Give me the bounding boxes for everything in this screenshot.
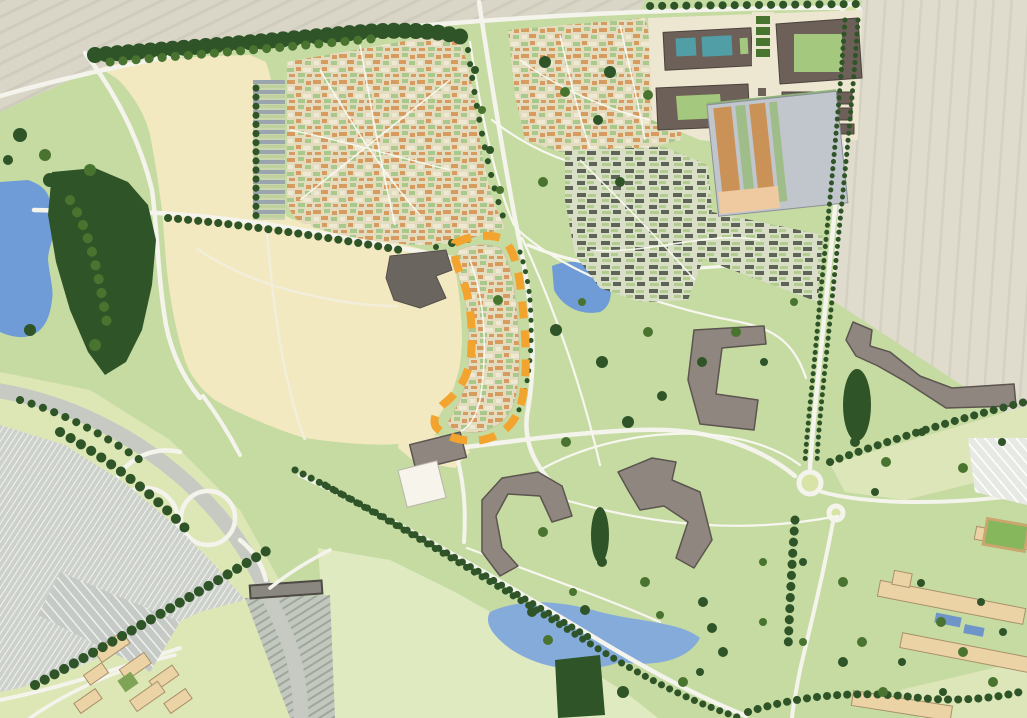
courtyard-green-1 bbox=[794, 34, 842, 72]
courtyard-pool-1 bbox=[676, 37, 697, 56]
roundabout-south bbox=[799, 472, 821, 494]
allotments bbox=[983, 519, 1027, 552]
masterplan-map bbox=[0, 0, 1027, 718]
market-garden-building bbox=[707, 89, 848, 216]
courtyard-pool-2 bbox=[701, 35, 732, 57]
tree-clump-east bbox=[843, 369, 871, 441]
tree-clump-south bbox=[555, 655, 605, 718]
tree-clump-center bbox=[591, 507, 609, 563]
masterplan-svg bbox=[0, 0, 1027, 718]
western-pond bbox=[0, 180, 55, 337]
